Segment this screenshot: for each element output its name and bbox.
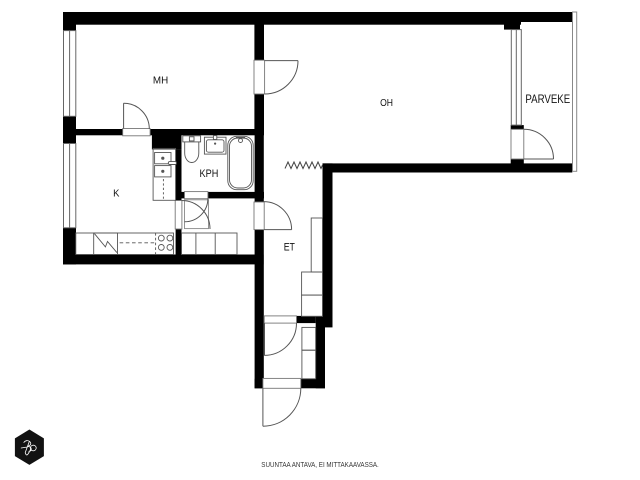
svg-text:K: K [113, 187, 119, 199]
svg-text:OH: OH [380, 98, 393, 109]
svg-text:KPH: KPH [200, 168, 219, 180]
svg-text:SUUNTAA ANTAVA, EI MITTAKAAVAS: SUUNTAA ANTAVA, EI MITTAKAAVASSA. [261, 462, 379, 469]
svg-text:MH: MH [153, 75, 168, 87]
svg-text:ET: ET [284, 242, 295, 254]
svg-text:PARVEKE: PARVEKE [525, 92, 570, 106]
